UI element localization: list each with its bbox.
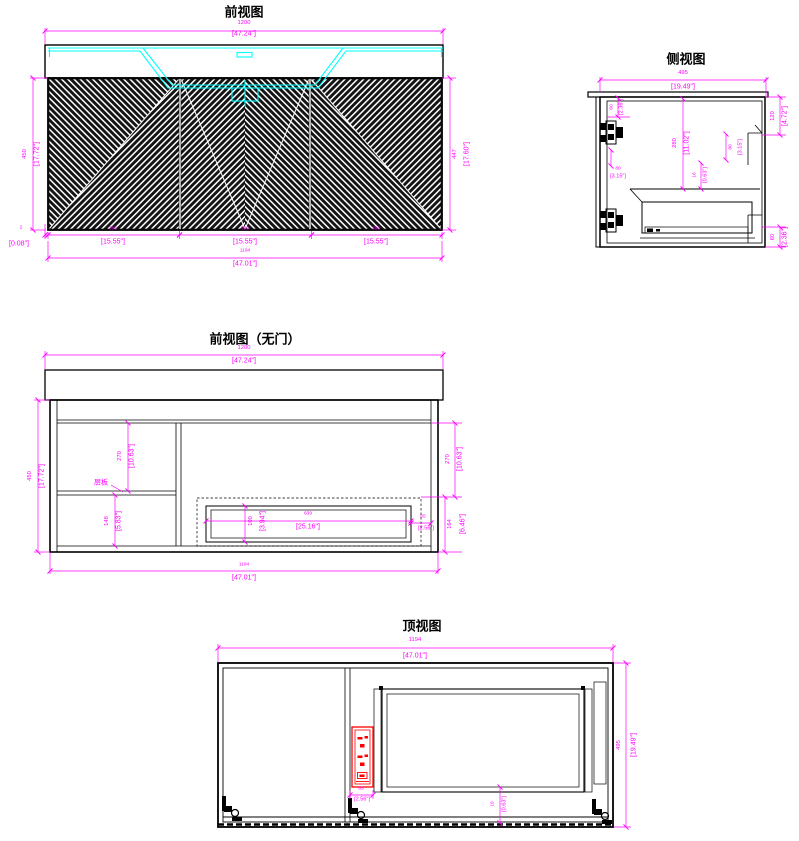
dim-side-righttop-in: [4.72"] bbox=[782, 106, 789, 126]
top-view-title: 顶视图 bbox=[402, 616, 441, 635]
dim-top-back-in: [0.63"] bbox=[502, 796, 508, 812]
drawer-rail-right bbox=[585, 689, 592, 792]
dim-front-door3-in: [15.55"] bbox=[364, 239, 388, 246]
dim-side-depth-in: [19.49"] bbox=[671, 84, 695, 91]
dim-top-depth-mm: 495 bbox=[617, 740, 623, 750]
dim-nodoor-lower-in: [5.83"] bbox=[116, 511, 123, 531]
nodoor-drawer bbox=[197, 498, 421, 546]
dim-front-total-in: [47.01"] bbox=[233, 261, 257, 268]
dim-front-toe-mm: 2 bbox=[20, 227, 23, 232]
front-countertop bbox=[45, 45, 443, 78]
hinge-icon bbox=[600, 209, 623, 232]
nodoor-dimension-lines bbox=[34, 351, 462, 574]
dim-nodoor-gap-in: [2.56"] bbox=[418, 526, 434, 532]
top-side-panel bbox=[594, 682, 606, 784]
drawer-slide-rail bbox=[645, 227, 748, 233]
dim-side-topgap-mm: 60 bbox=[611, 104, 616, 109]
top-cabinet-outline bbox=[218, 663, 613, 827]
side-view-title: 侧视图 bbox=[666, 49, 705, 68]
dim-nodoor-top-in: [47.24"] bbox=[232, 358, 256, 365]
dim-nodoor-gap-mm: 65 bbox=[420, 516, 425, 521]
dim-side-inner-in: [11.02"] bbox=[684, 131, 691, 154]
dim-side-righttop-mm: 120 bbox=[771, 111, 777, 121]
nodoor-view-title: 前视图（无门） bbox=[209, 329, 300, 348]
hinge-icon bbox=[592, 799, 612, 824]
dim-front-door2-in: [15.55"] bbox=[233, 239, 257, 246]
nodoor-view-drawing bbox=[34, 351, 462, 574]
top-drawer bbox=[374, 686, 592, 792]
dim-nodoor-lower-mm: 148 bbox=[105, 516, 111, 526]
dim-top-width-in: [47.01"] bbox=[403, 653, 427, 660]
dim-nodoor-drawerw-in: [25.16"] bbox=[296, 524, 320, 531]
dim-nodoor-total-in: [47.01"] bbox=[232, 575, 256, 582]
dim-top-outlet-in: [2.56"] bbox=[354, 797, 370, 803]
dim-nodoor-drawerh-in: [3.94"] bbox=[260, 511, 267, 531]
dim-side-leftgap-mm: 80 bbox=[615, 168, 620, 173]
nodoor-countertop bbox=[45, 370, 443, 400]
dim-front-top-in: [47.24"] bbox=[232, 31, 256, 38]
dim-side-board-mm: 16 bbox=[694, 172, 699, 177]
dim-nodoor-upper-mm: 270 bbox=[118, 451, 124, 461]
drawing-sheet: 前视图 1200 [47.24"] 450 [17.72"] 447 [17.6… bbox=[0, 0, 799, 841]
dim-side-depth-mm: 495 bbox=[678, 71, 688, 77]
front-view-title: 前视图 bbox=[224, 2, 263, 21]
drawer-rail-left bbox=[374, 689, 381, 792]
faucet-hole bbox=[237, 53, 252, 58]
dim-nodoor-top-mm: 1200 bbox=[238, 346, 251, 352]
dim-front-door2-mm: 395 bbox=[241, 228, 249, 233]
dim-nodoor-drawerh-mm: 100 bbox=[249, 516, 255, 526]
dim-nodoor-rupper-in: [10.63"] bbox=[457, 447, 464, 471]
dim-side-backrail-in: [3.15"] bbox=[738, 139, 744, 155]
dim-front-door1-in: [15.55"] bbox=[101, 239, 125, 246]
dim-nodoor-total-mm: 1194 bbox=[239, 564, 249, 569]
side-dimension-lines bbox=[600, 77, 786, 247]
dim-top-outlet-mm: 65 bbox=[358, 788, 363, 793]
top-dimension-lines bbox=[218, 644, 631, 827]
dim-front-left-in: [17.72"] bbox=[34, 142, 41, 166]
dim-side-board-in: [0.63"] bbox=[703, 167, 709, 183]
dim-nodoor-rlower-mm: 164 bbox=[448, 519, 454, 529]
dim-front-door1-mm: 395 bbox=[109, 228, 117, 233]
dim-top-depth-in: [19.49"] bbox=[631, 733, 638, 757]
dim-front-right-mm: 447 bbox=[453, 149, 459, 159]
dim-nodoor-upper-in: [10.63"] bbox=[129, 444, 136, 468]
dim-side-backrail-mm: 80 bbox=[730, 144, 735, 149]
power-outlet bbox=[352, 727, 373, 787]
side-drawer bbox=[630, 189, 760, 238]
dim-front-right-in: [17.60"] bbox=[464, 142, 471, 166]
shelf-label: 层板 bbox=[94, 480, 108, 487]
dim-front-total-mm: 1194 bbox=[240, 250, 250, 255]
dim-side-rightbottom-mm: 60 bbox=[771, 234, 777, 240]
dim-nodoor-rlower-in: [6.46"] bbox=[460, 514, 467, 534]
dim-front-top-mm: 1200 bbox=[238, 21, 251, 27]
dim-top-back-mm: 16 bbox=[492, 801, 497, 806]
dim-side-leftgap-in: [3.15"] bbox=[610, 174, 626, 180]
dim-side-rightbottom-in: [2.36"] bbox=[782, 227, 789, 247]
dim-top-width-mm: 1194 bbox=[409, 638, 421, 644]
dim-side-topgap-in: [2.36"] bbox=[619, 99, 625, 115]
dim-front-door3-mm: 395 bbox=[372, 228, 380, 233]
dim-nodoor-drawerw-mm: 639 bbox=[304, 513, 312, 518]
hinge-icon bbox=[600, 121, 623, 144]
side-cabinet-outline bbox=[600, 97, 765, 247]
dim-nodoor-left-mm: 450 bbox=[28, 471, 34, 481]
dim-nodoor-left-in: [17.72"] bbox=[39, 464, 46, 488]
dim-side-inner-mm: 280 bbox=[673, 138, 679, 148]
front-door-panel-1 bbox=[49, 79, 179, 229]
top-view-drawing bbox=[218, 644, 631, 827]
dim-front-left-mm: 450 bbox=[23, 149, 29, 159]
dim-front-toe-in: [0.08"] bbox=[9, 241, 29, 248]
dim-nodoor-rupper-mm: 270 bbox=[446, 454, 452, 464]
drawing-canvas bbox=[0, 0, 799, 841]
front-door-panel-3 bbox=[311, 79, 441, 229]
side-back-rail bbox=[748, 125, 762, 165]
